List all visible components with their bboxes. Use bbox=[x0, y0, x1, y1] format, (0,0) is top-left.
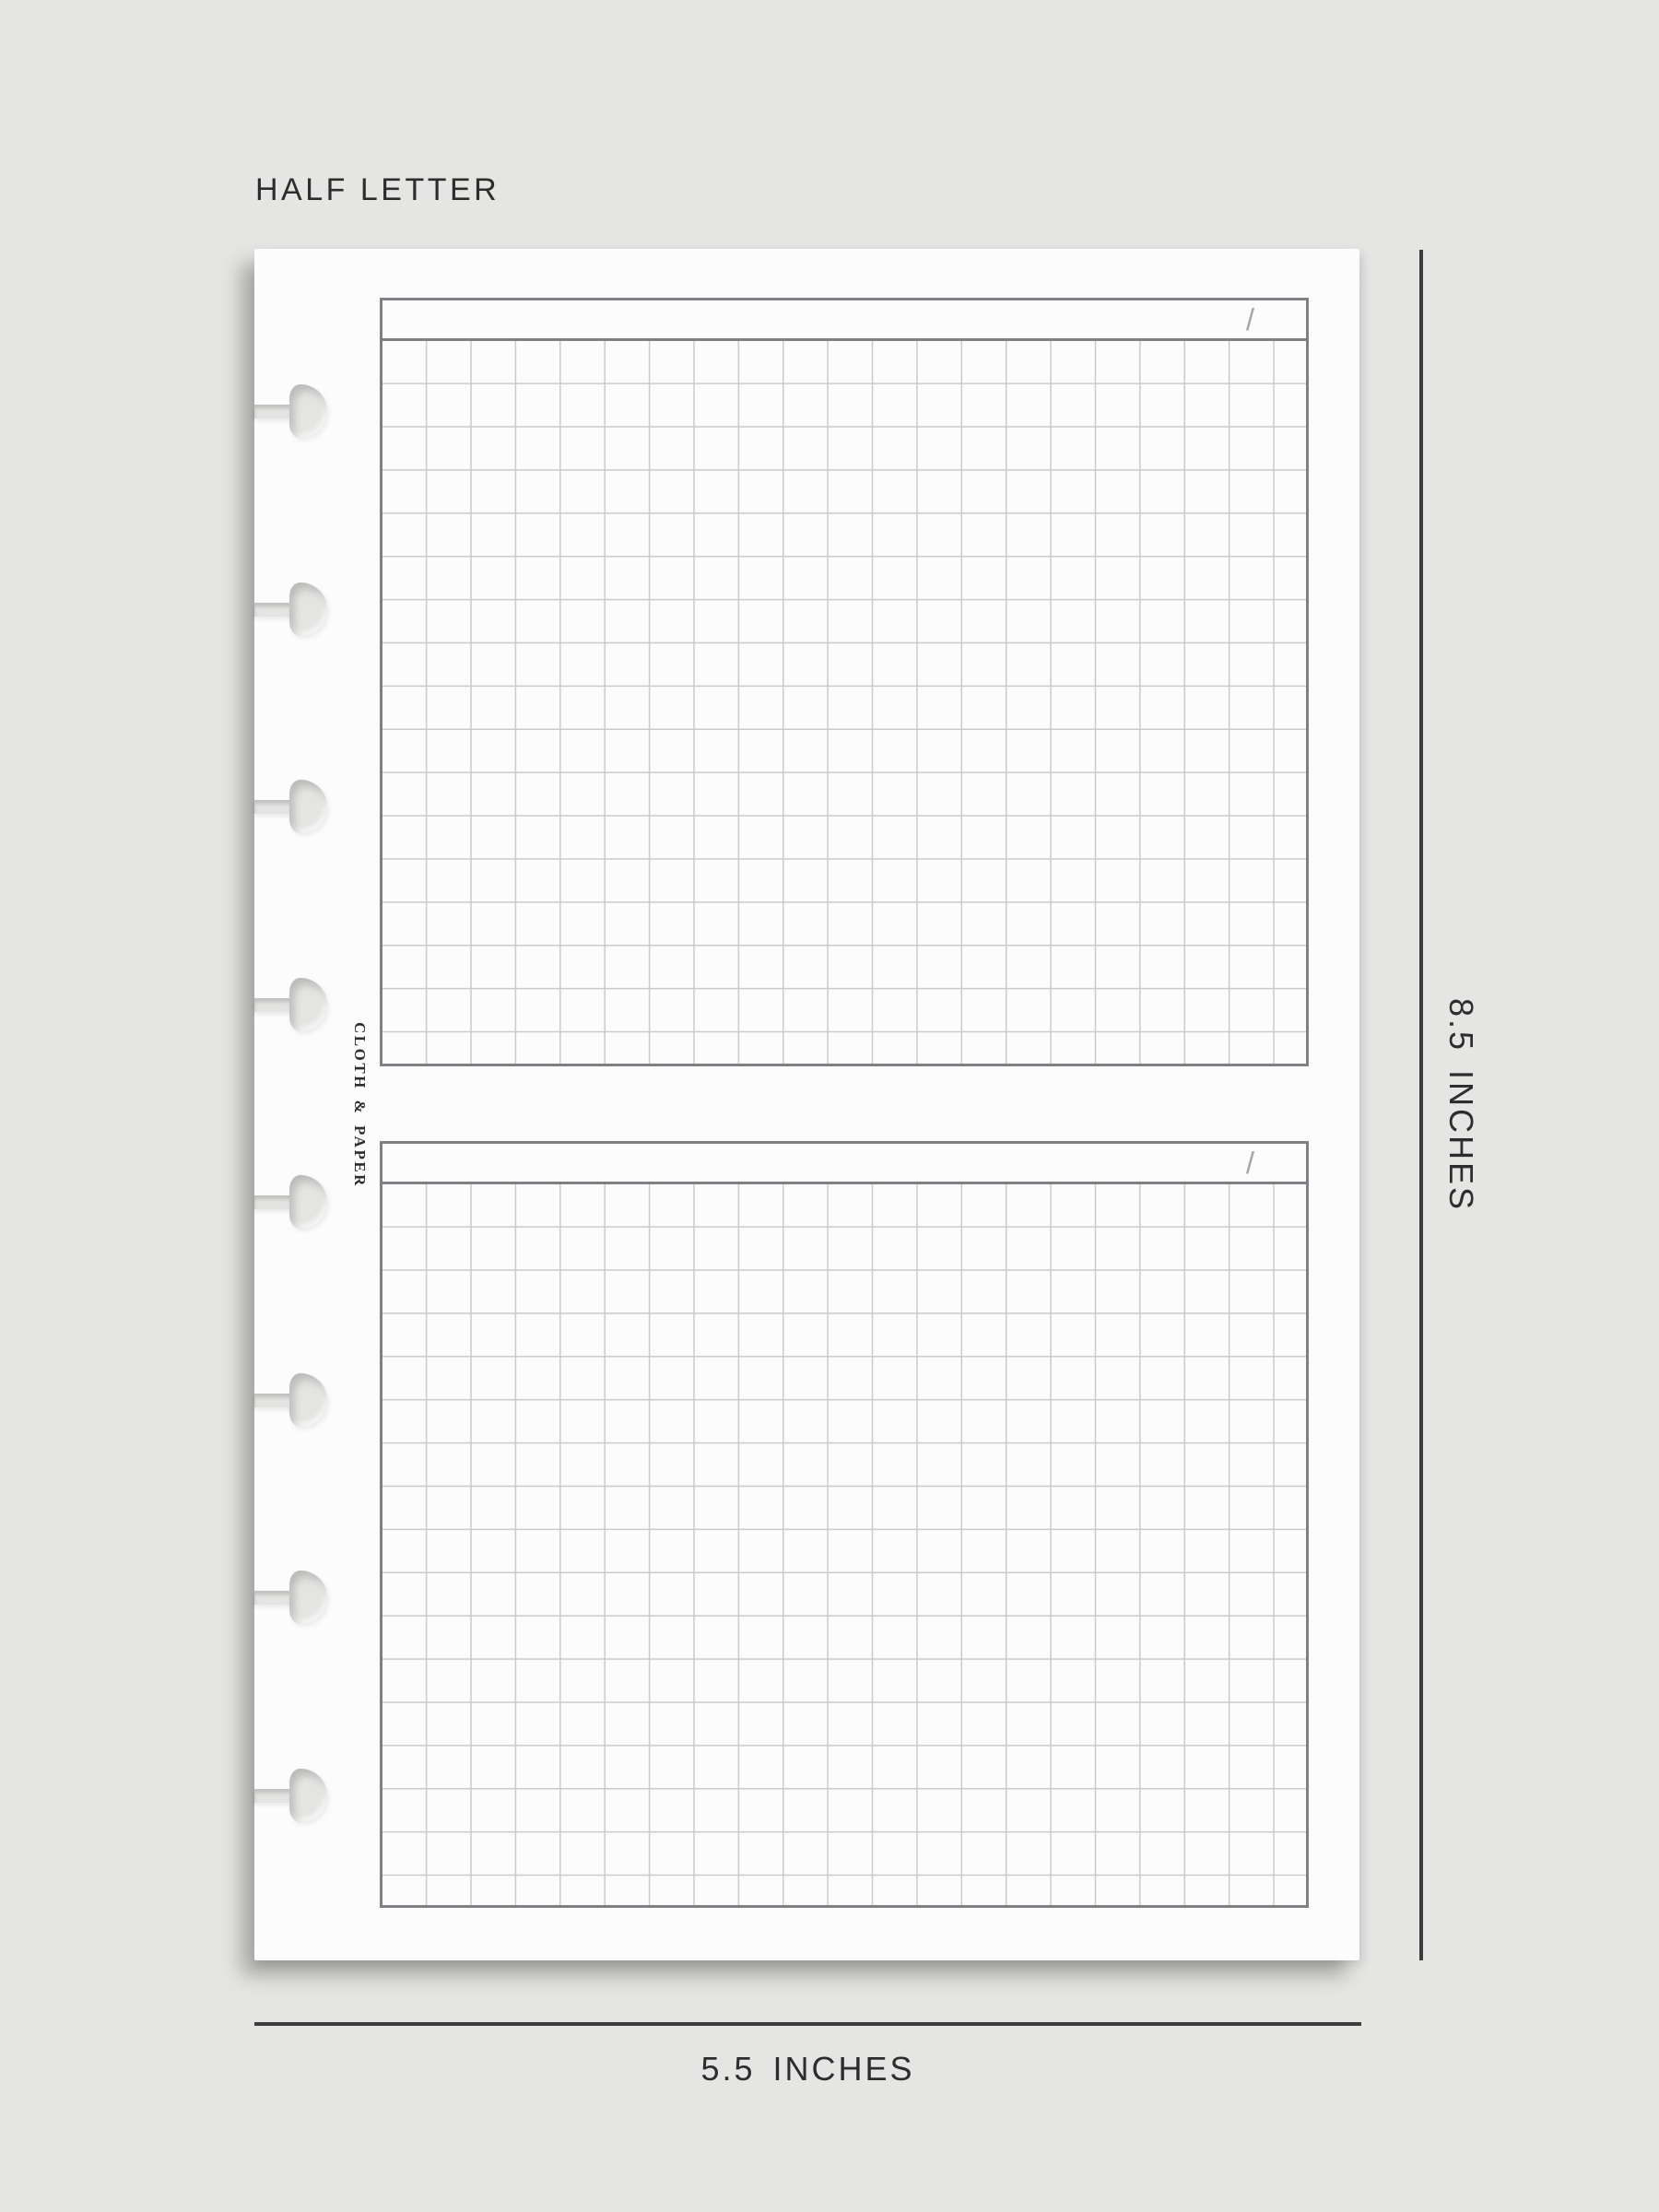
grid-section-bottom: / bbox=[380, 1141, 1309, 1908]
punch-circle-icon bbox=[289, 780, 327, 833]
brand-vertical-text: CLOTH & PAPER bbox=[341, 249, 369, 1960]
punch-circle-icon bbox=[289, 1571, 327, 1624]
punch-circle-icon bbox=[289, 384, 327, 438]
grid-header: / bbox=[382, 300, 1306, 341]
date-slash: / bbox=[1246, 1146, 1254, 1181]
punch-circle-icon bbox=[289, 978, 327, 1031]
width-dimension-line bbox=[254, 2022, 1361, 2026]
width-dimension-label: 5.5 INCHES bbox=[254, 2050, 1361, 2088]
product-mockup: HALF LETTER CLOTH & PAPER / / 8.5 INC bbox=[0, 0, 1659, 2212]
grid-paper-area bbox=[382, 341, 1306, 1064]
punch-circle-icon bbox=[289, 1769, 327, 1822]
planner-page: CLOTH & PAPER / / bbox=[254, 249, 1359, 1960]
grid-paper-area bbox=[382, 1184, 1306, 1905]
height-dimension-line bbox=[1419, 250, 1423, 1960]
height-dimension-label: 8.5 INCHES bbox=[1441, 250, 1480, 1960]
grid-section-top: / bbox=[380, 298, 1309, 1066]
punch-circle-icon bbox=[289, 1373, 327, 1427]
punch-circle-icon bbox=[289, 1175, 327, 1229]
size-label: HALF LETTER bbox=[255, 173, 500, 207]
punch-circle-icon bbox=[289, 582, 327, 636]
date-slash: / bbox=[1246, 302, 1254, 337]
grid-header: / bbox=[382, 1144, 1306, 1184]
